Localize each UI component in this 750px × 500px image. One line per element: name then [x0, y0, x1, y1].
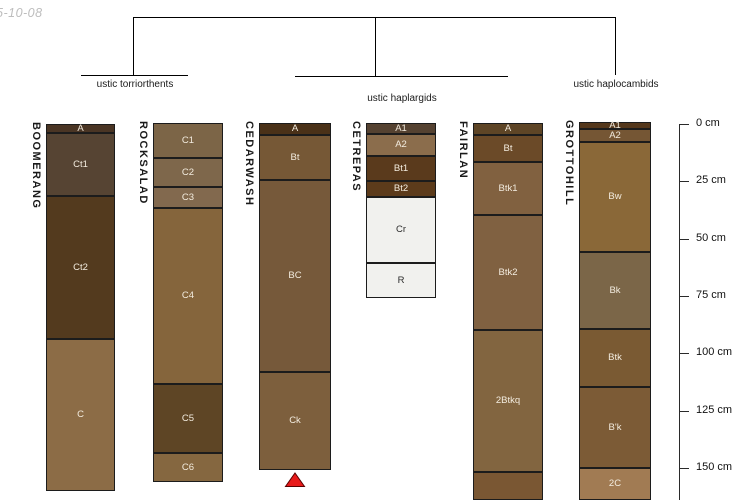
horizon-label: C6: [182, 463, 194, 473]
horizon-bc: BC: [259, 180, 331, 372]
depth-tick-label: 0 cm: [696, 117, 720, 129]
profile-name-rocksalad: ROCKSALAD: [137, 121, 149, 205]
group-label-haplocambids: ustic haplocambids: [556, 79, 676, 90]
tree-branch-haplargids: [295, 76, 508, 77]
depth-tick: [679, 239, 689, 240]
horizon-label: Bt1: [394, 164, 408, 174]
horizon-a1: A1: [579, 122, 651, 129]
horizon-a2: A2: [366, 134, 436, 156]
horizon-label: Btk: [608, 353, 622, 363]
depth-tick-label: 25 cm: [696, 174, 726, 186]
depth-tick-label: 125 cm: [696, 404, 732, 416]
horizon-label: Btk2: [498, 268, 517, 278]
horizon-label: Bt: [504, 144, 513, 154]
horizon-b'k: B'k: [579, 387, 651, 468]
tree-stem-middle: [375, 17, 376, 76]
horizon-bw: Bw: [579, 142, 651, 252]
horizon-a1: A1: [366, 123, 436, 134]
horizon-a: A: [46, 124, 115, 133]
depth-tick: [679, 296, 689, 297]
tree-stem-left: [133, 17, 134, 75]
horizon-c5: C5: [153, 384, 223, 453]
horizon-label: 2Btkq: [496, 396, 520, 406]
horizon-bt2: Bt2: [366, 181, 436, 197]
horizon-ct2: Ct2: [46, 196, 115, 339]
horizon-label: A: [505, 124, 511, 134]
horizon-2btkq: 2Btkq: [473, 330, 543, 472]
horizon-bt: Bt: [473, 135, 543, 162]
horizon-bk: Bk: [579, 252, 651, 329]
horizon-label: Bt: [291, 153, 300, 163]
horizon-a: A: [259, 123, 331, 135]
horizon-label: Ck: [289, 416, 301, 426]
depth-tick-label: 75 cm: [696, 289, 726, 301]
horizon-label: Ct2: [73, 263, 88, 273]
depth-tick: [679, 468, 689, 469]
depth-tick-label: 100 cm: [696, 346, 732, 358]
horizon-label: R: [398, 276, 405, 286]
horizon-label: A: [292, 124, 298, 134]
horizon-bt1: Bt1: [366, 156, 436, 181]
soil-profile-figure: 5-10-08 ustic torriorthents ustic haplar…: [0, 0, 750, 500]
horizon-c: C: [46, 339, 115, 491]
horizon-label: Bw: [608, 192, 621, 202]
profile-name-cedarwash: CEDARWASH: [243, 121, 255, 206]
horizon-ck: Ck: [259, 372, 331, 470]
profile-name-grottohill: GROTTOHILL: [563, 120, 575, 206]
horizon-unlabeled: [473, 472, 543, 500]
horizon-label: A2: [395, 140, 407, 150]
depth-tick: [679, 353, 689, 354]
horizon-c4: C4: [153, 208, 223, 384]
depth-tick: [679, 411, 689, 412]
horizon-label: C1: [182, 136, 194, 146]
horizon-cr: Cr: [366, 197, 436, 263]
tree-stem-right: [615, 17, 616, 75]
horizon-btk1: Btk1: [473, 162, 543, 215]
group-label-torriorthents: ustic torriorthents: [75, 79, 195, 90]
horizon-label: Bk: [609, 286, 620, 296]
horizon-label: C3: [182, 193, 194, 203]
horizon-btk2: Btk2: [473, 215, 543, 330]
horizon-label: Ct1: [73, 160, 88, 170]
horizon-ct1: Ct1: [46, 133, 115, 196]
horizon-a: A: [473, 123, 543, 135]
red-triangle-marker: [283, 471, 307, 489]
horizon-label: C2: [182, 168, 194, 178]
date-note: 5-10-08: [0, 6, 43, 20]
horizon-c6: C6: [153, 453, 223, 482]
profile-name-boomerang: BOOMERANG: [30, 122, 42, 209]
tree-branch-torriorthents: [81, 75, 188, 76]
horizon-label: BC: [288, 271, 301, 281]
horizon-c2: C2: [153, 158, 223, 187]
group-label-haplargids: ustic haplargids: [342, 93, 462, 104]
horizon-label: Bt2: [394, 184, 408, 194]
profile-name-fairlan: FAIRLAN: [457, 121, 469, 179]
horizon-label: 2C: [609, 479, 621, 489]
depth-tick-label: 50 cm: [696, 232, 726, 244]
horizon-label: C: [77, 410, 84, 420]
horizon-label: Cr: [396, 225, 406, 235]
profile-name-cetrepas: CETREPAS: [350, 121, 362, 192]
horizon-label: C5: [182, 414, 194, 424]
horizon-label: B'k: [609, 423, 622, 433]
horizon-a2: A2: [579, 129, 651, 142]
depth-tick: [679, 181, 689, 182]
horizon-label: A1: [395, 124, 407, 134]
depth-tick: [679, 124, 689, 125]
horizon-label: A2: [609, 131, 621, 141]
horizon-label: C4: [182, 291, 194, 301]
horizon-2c: 2C: [579, 468, 651, 500]
horizon-btk: Btk: [579, 329, 651, 387]
depth-tick-label: 150 cm: [696, 461, 732, 473]
horizon-label: Btk1: [498, 184, 517, 194]
horizon-r: R: [366, 263, 436, 298]
horizon-c1: C1: [153, 123, 223, 158]
horizon-c3: C3: [153, 187, 223, 208]
horizon-label: A: [77, 124, 83, 134]
horizon-bt: Bt: [259, 135, 331, 180]
